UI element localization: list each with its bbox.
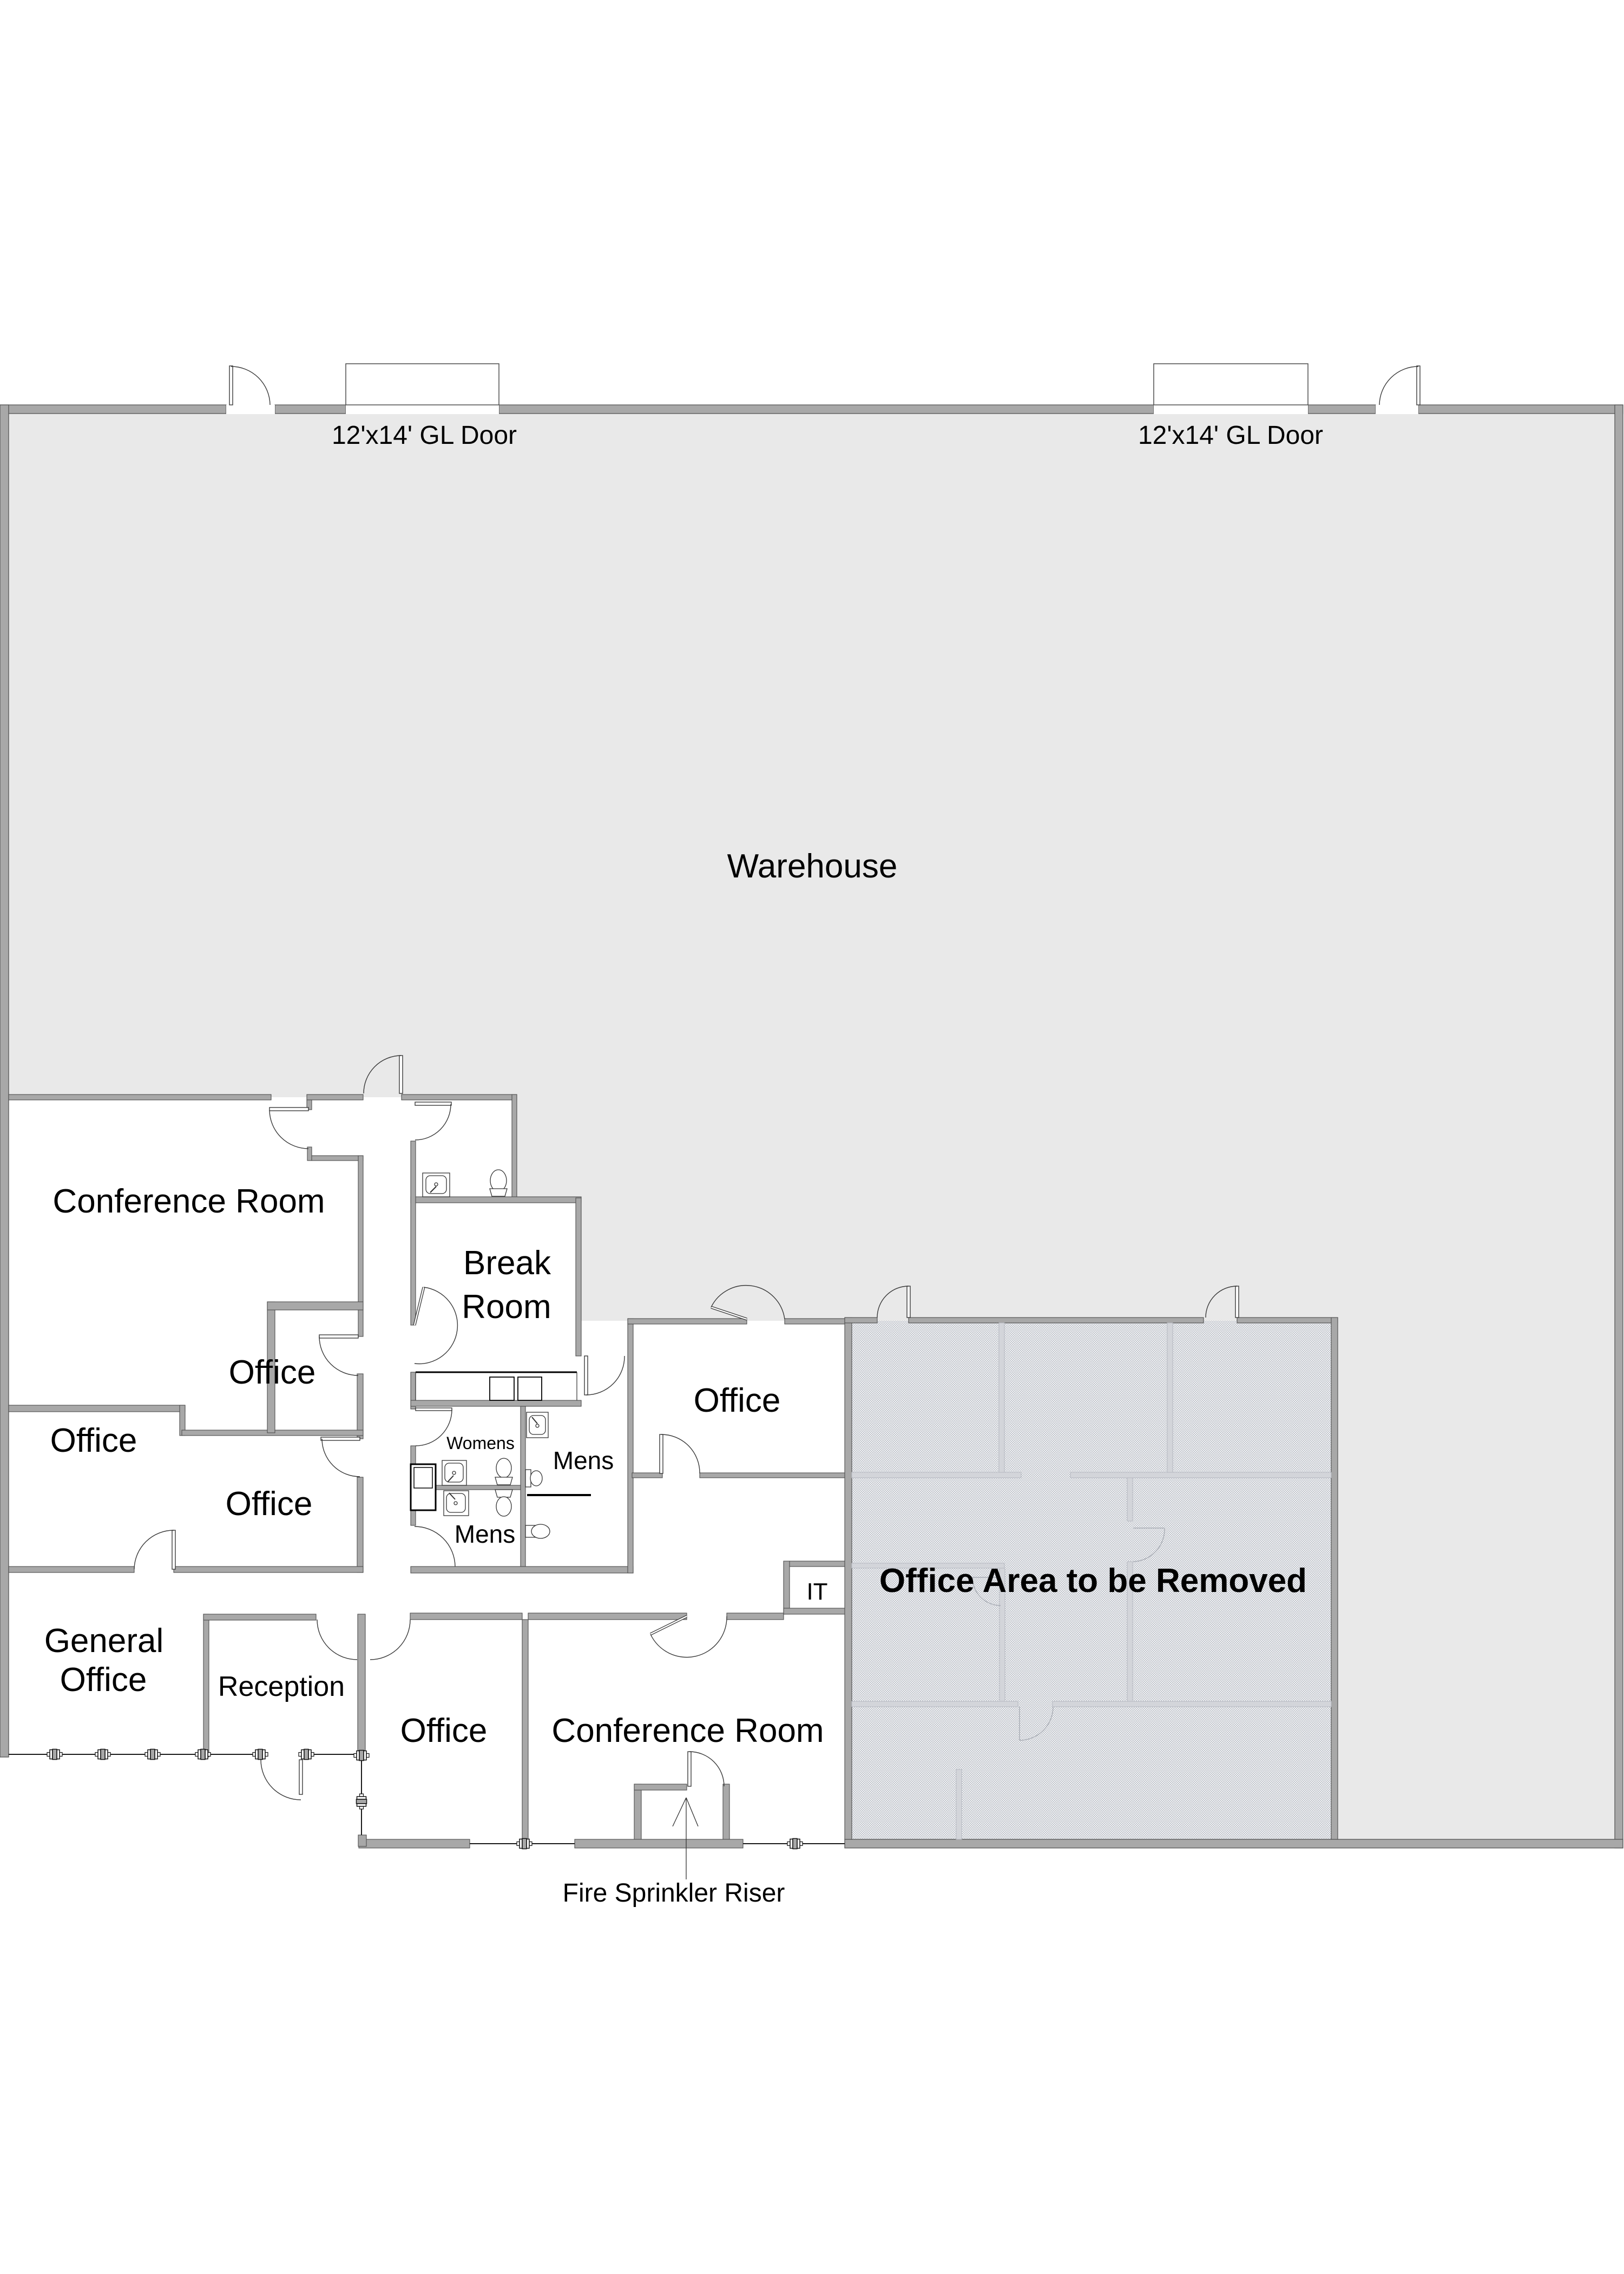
svg-text:Office: Office: [400, 1712, 488, 1749]
svg-text:Fire Sprinkler Riser: Fire Sprinkler Riser: [563, 1879, 785, 1908]
svg-text:Womens: Womens: [446, 1433, 515, 1453]
svg-text:Office Area to be Removed: Office Area to be Removed: [879, 1562, 1307, 1600]
svg-text:12'x14' GL Door: 12'x14' GL Door: [1138, 421, 1323, 450]
svg-text:Break: Break: [463, 1244, 551, 1282]
svg-text:Office: Office: [694, 1382, 781, 1419]
svg-text:Office: Office: [60, 1661, 147, 1699]
svg-text:IT: IT: [806, 1578, 827, 1605]
svg-text:Office: Office: [50, 1422, 137, 1459]
svg-text:Warehouse: Warehouse: [727, 848, 898, 885]
svg-text:Reception: Reception: [218, 1671, 345, 1702]
svg-text:Room: Room: [462, 1288, 551, 1326]
svg-text:General: General: [44, 1622, 164, 1660]
svg-text:Office: Office: [226, 1485, 313, 1523]
svg-text:Conference Room: Conference Room: [52, 1183, 325, 1220]
svg-text:Office: Office: [229, 1354, 316, 1391]
svg-text:Conference Room: Conference Room: [551, 1712, 824, 1749]
svg-text:Mens: Mens: [553, 1446, 614, 1475]
svg-text:12'x14' GL Door: 12'x14' GL Door: [332, 421, 517, 450]
svg-text:Mens: Mens: [455, 1520, 515, 1548]
